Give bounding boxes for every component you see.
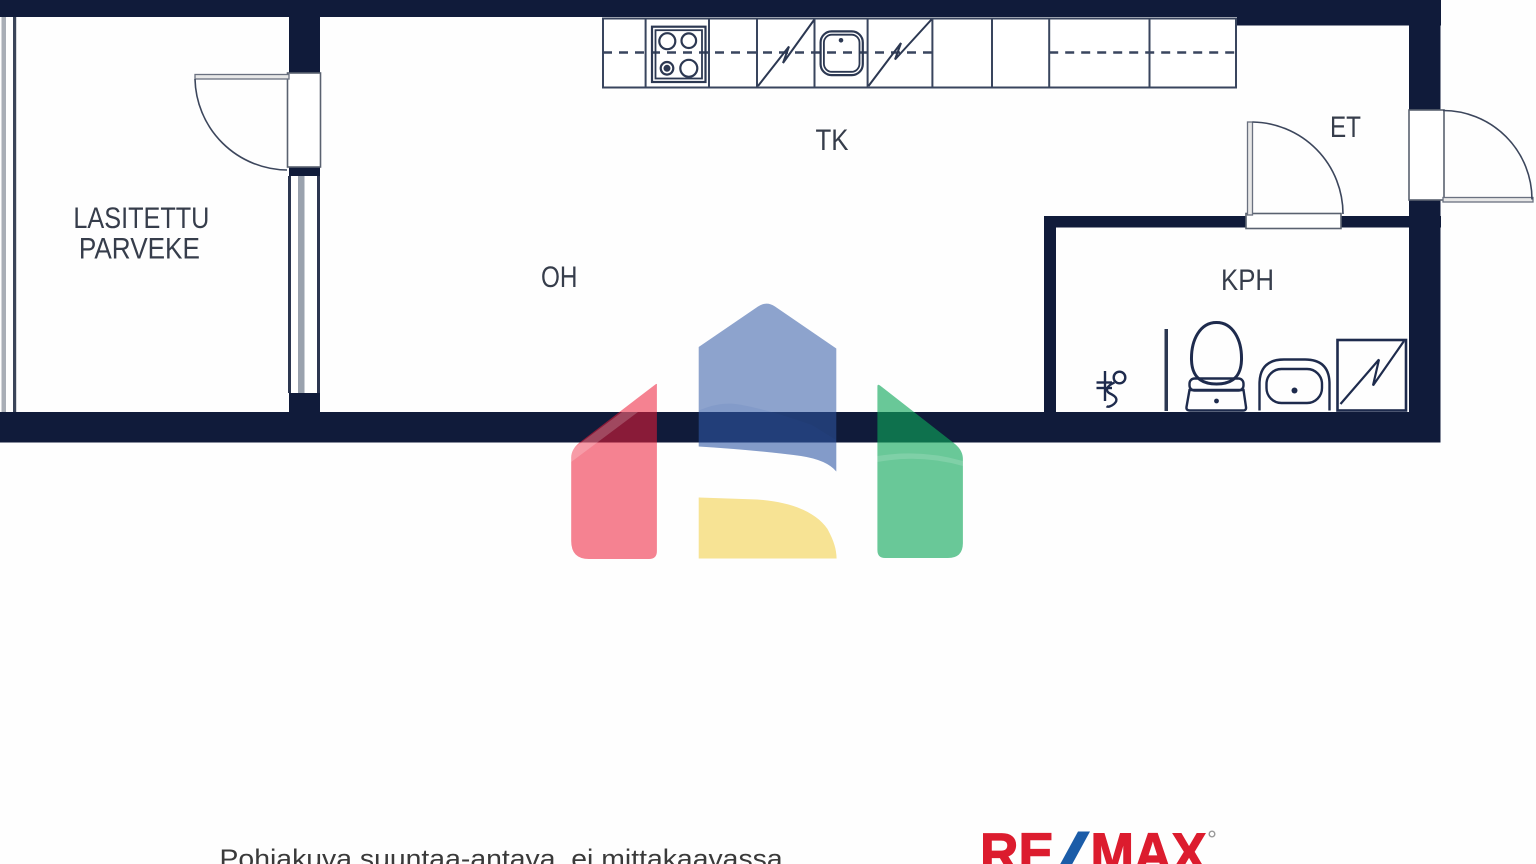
svg-text:Pohjakuva suuntaa-antava, ei m: Pohjakuva suuntaa-antava, ei mittakaavas… <box>220 844 791 864</box>
svg-text:ET: ET <box>1330 111 1361 144</box>
svg-text:PARVEKE: PARVEKE <box>79 233 200 266</box>
svg-text:MAX: MAX <box>1091 821 1207 864</box>
svg-text:TK: TK <box>816 124 849 157</box>
svg-text:OH: OH <box>541 261 578 294</box>
svg-text:LASITETTU: LASITETTU <box>73 202 209 235</box>
svg-text:KPH: KPH <box>1221 264 1274 297</box>
svg-text:RE: RE <box>980 821 1054 864</box>
